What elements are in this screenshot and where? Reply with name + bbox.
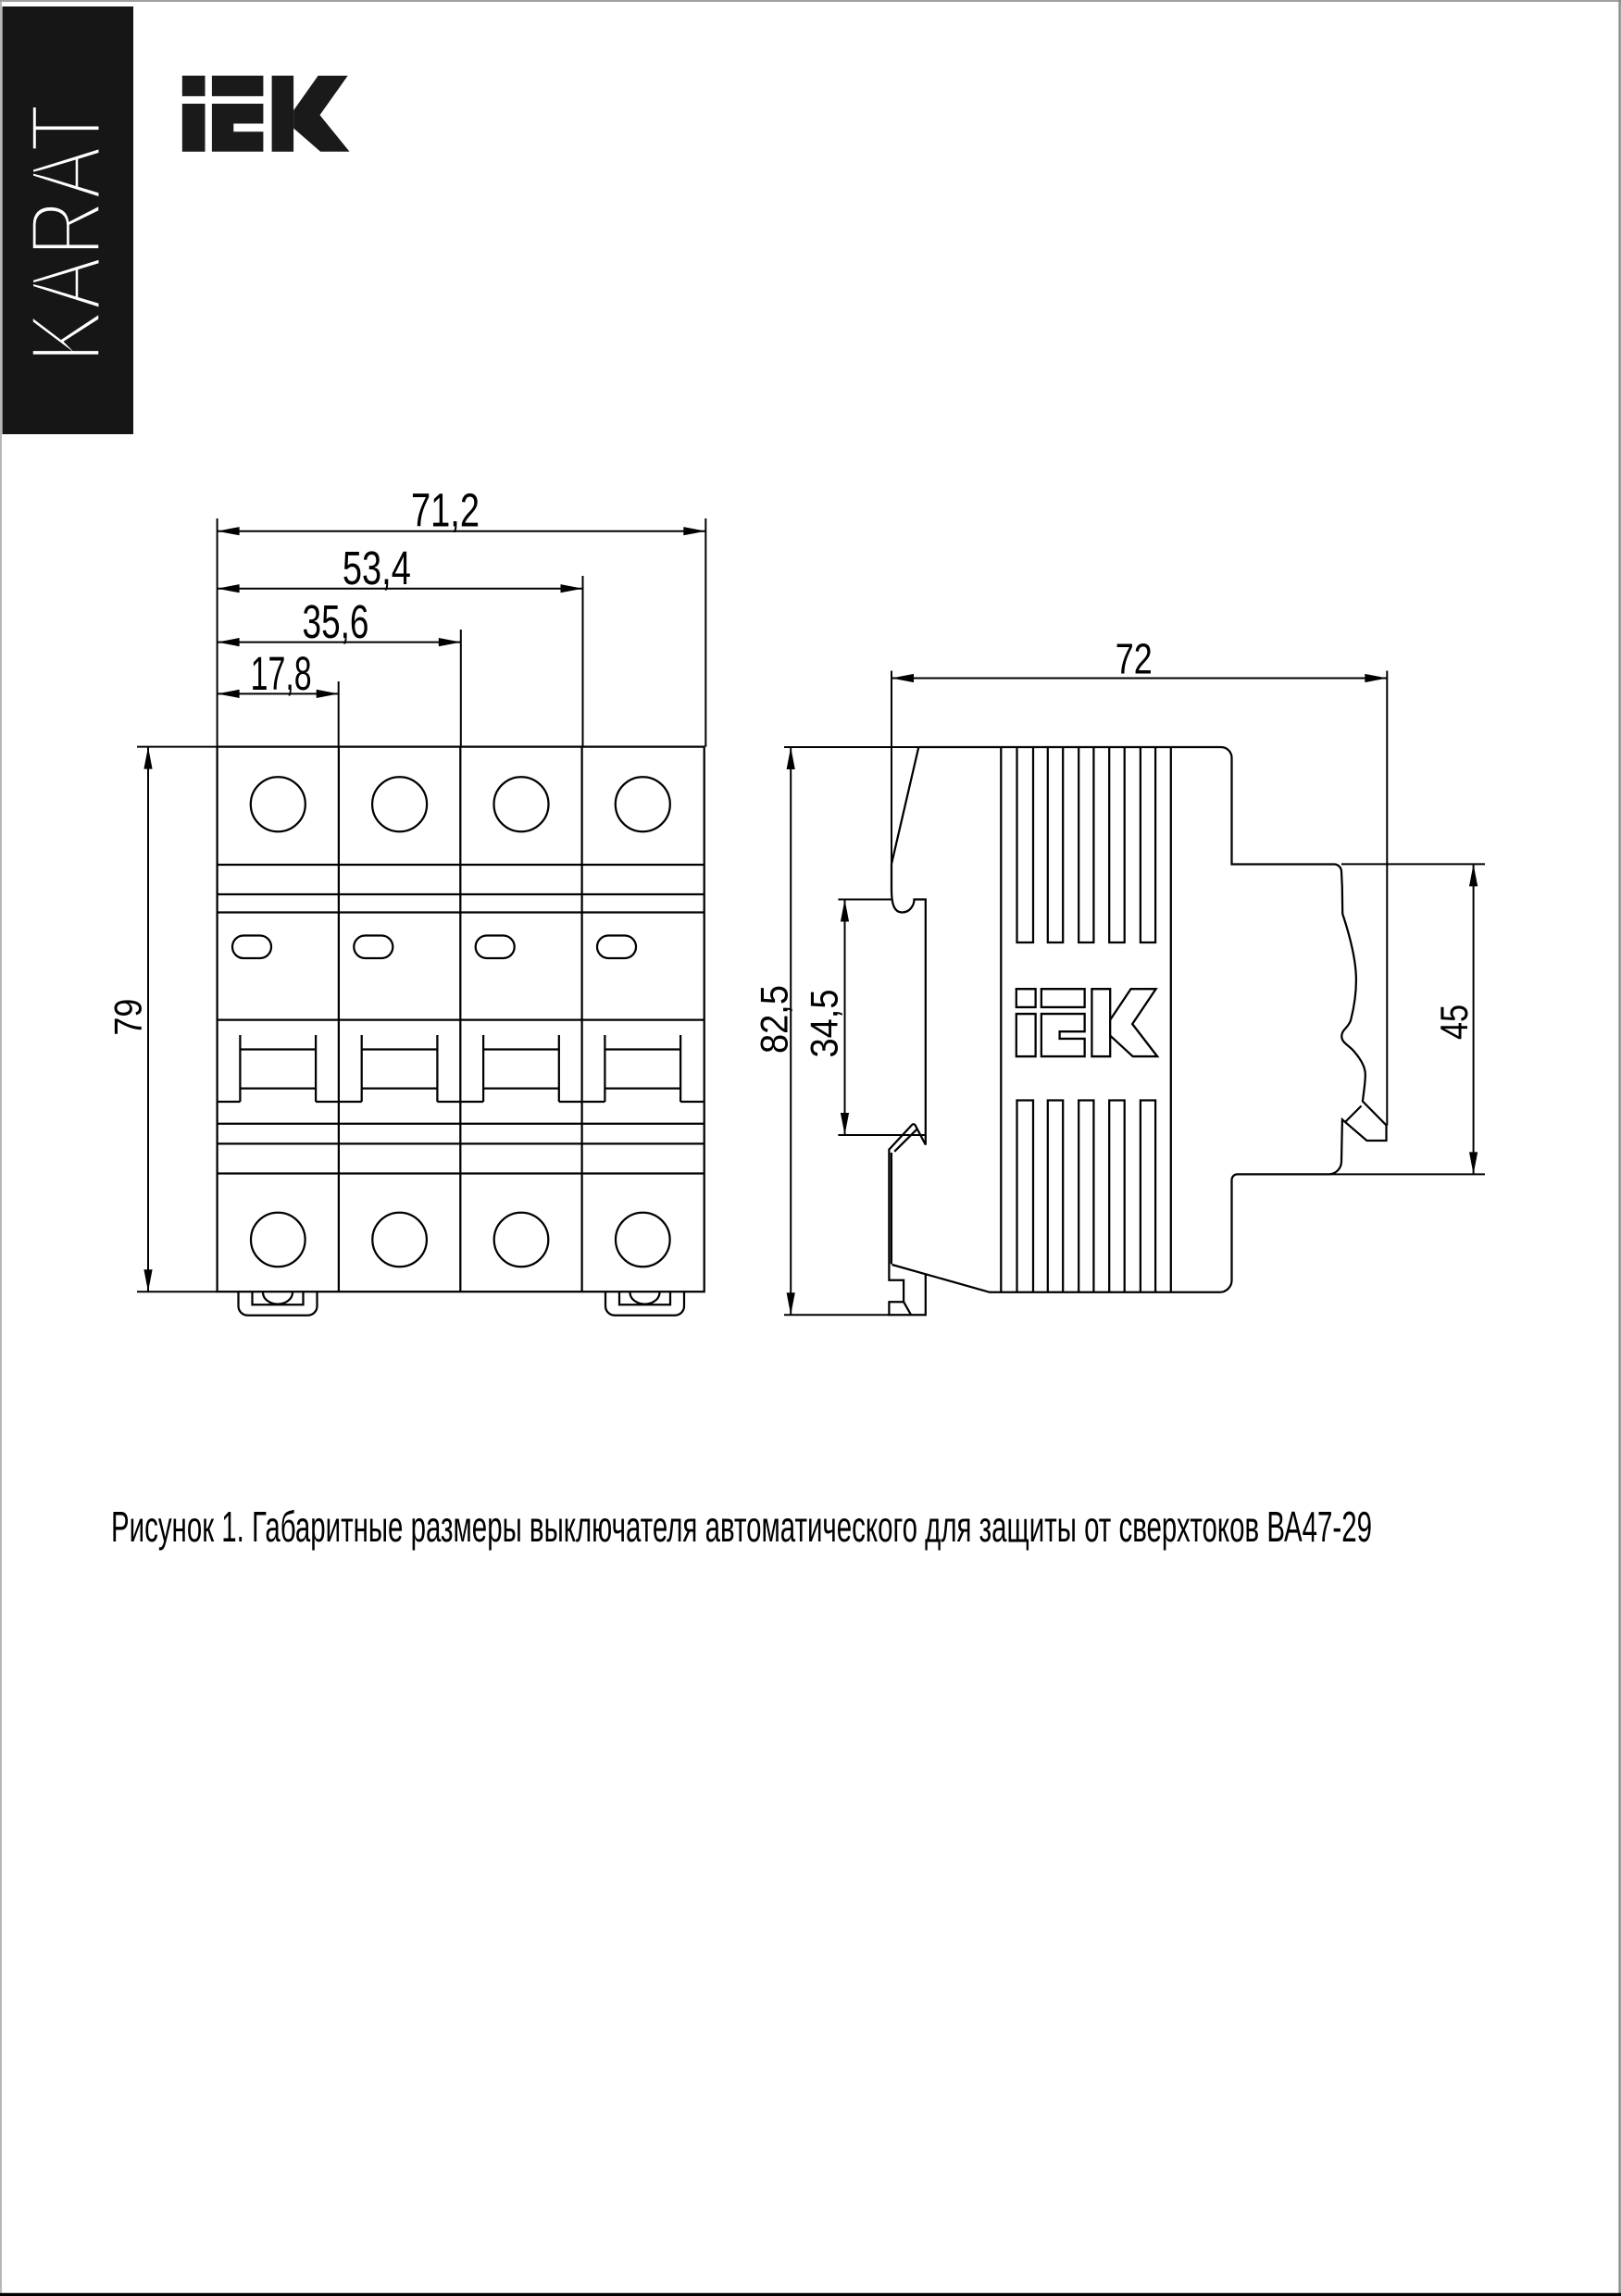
svg-text:17,8: 17,8 [251,647,312,700]
svg-text:82,5: 82,5 [753,985,796,1054]
svg-text:34,5: 34,5 [803,990,846,1058]
svg-text:KARAT: KARAT [9,104,123,363]
svg-text:72: 72 [1116,635,1153,683]
svg-text:Рисунок 1. Габаритные размеры: Рисунок 1. Габаритные размеры выключател… [111,1503,1372,1551]
svg-text:45: 45 [1432,1004,1476,1040]
svg-text:79: 79 [106,999,150,1036]
svg-text:53,4: 53,4 [343,542,411,594]
svg-text:71,2: 71,2 [411,484,480,537]
svg-text:35,6: 35,6 [303,595,369,648]
